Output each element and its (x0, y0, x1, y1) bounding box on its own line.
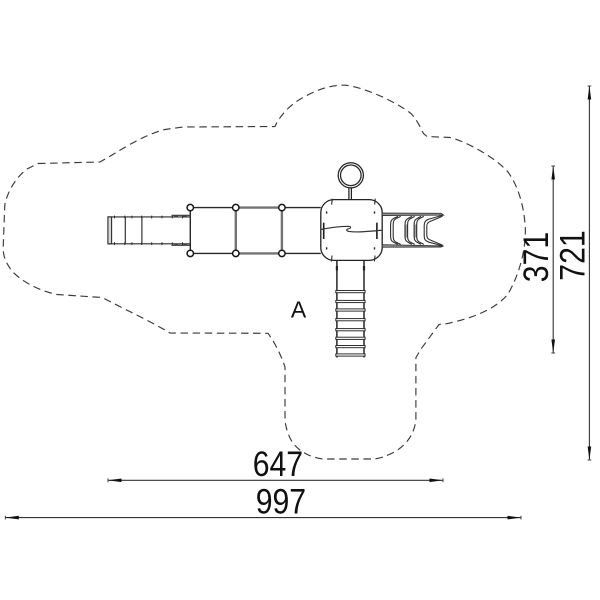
svg-text:371: 371 (516, 232, 556, 282)
svg-text:997: 997 (256, 481, 306, 521)
svg-text:647: 647 (253, 444, 303, 484)
svg-text:A: A (291, 297, 307, 323)
svg-text:721: 721 (553, 230, 593, 280)
